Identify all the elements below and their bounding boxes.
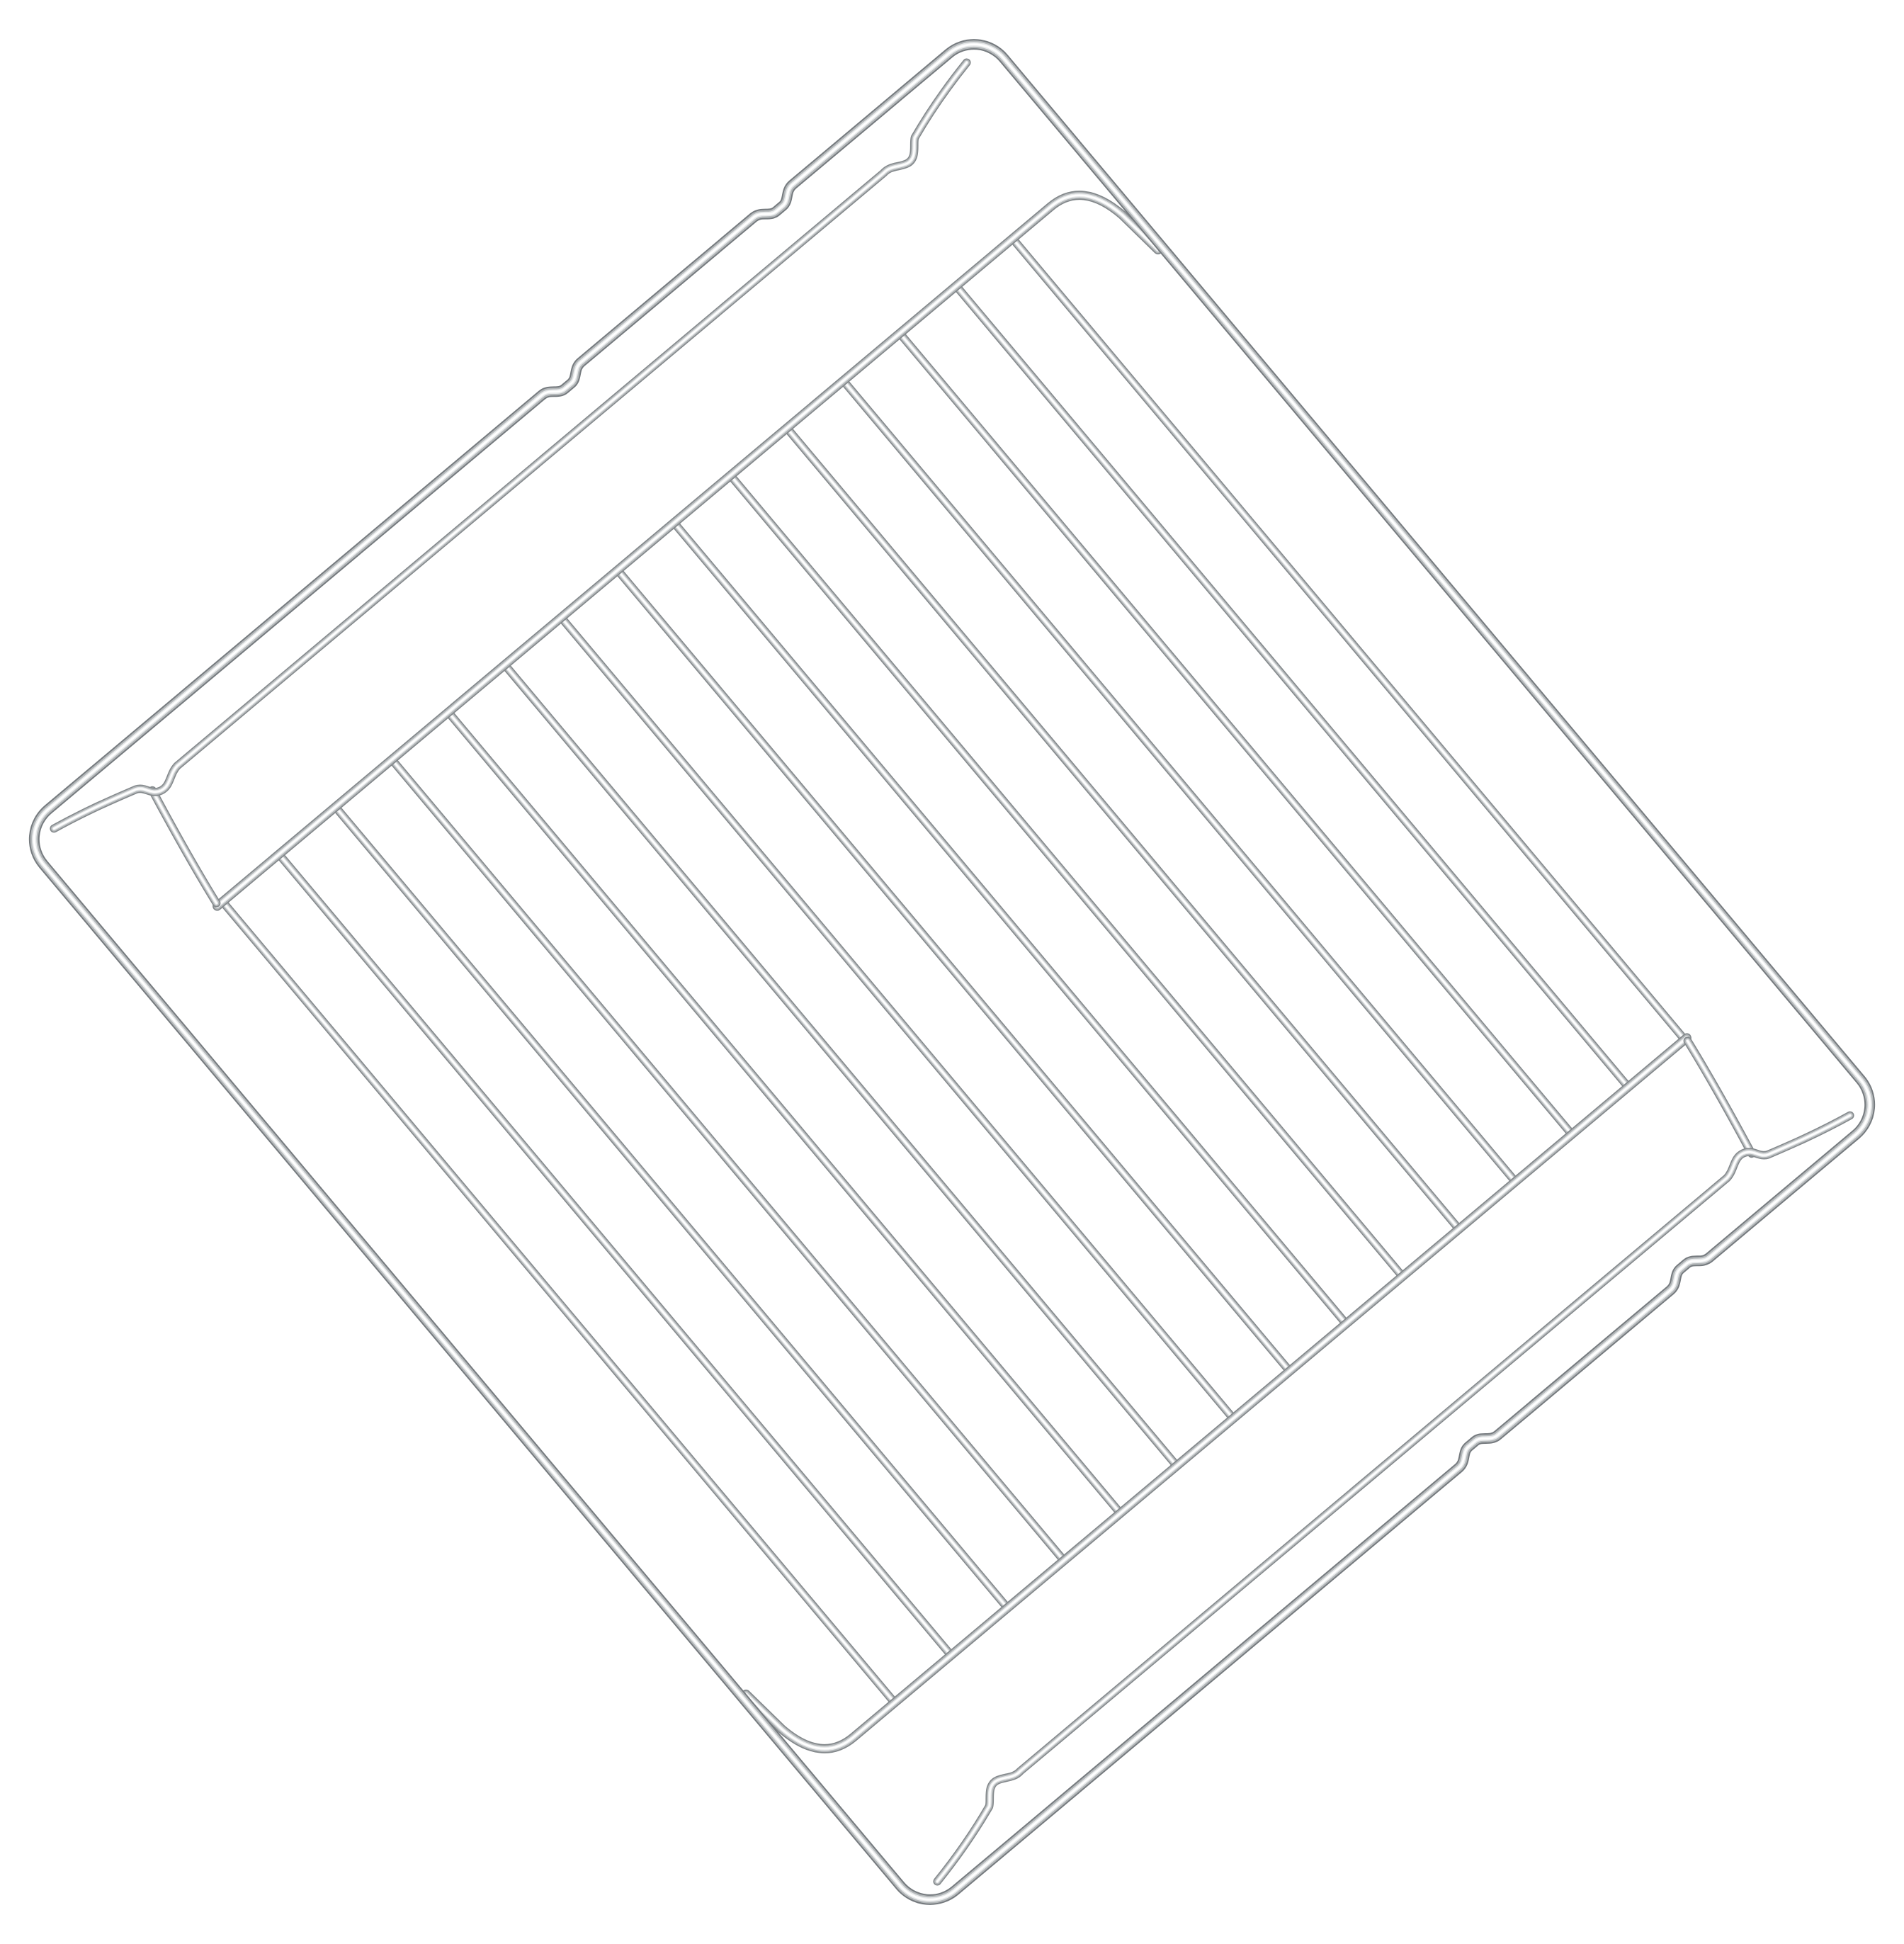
oven-rack-photo <box>0 0 1904 1944</box>
photo-stage <box>0 0 1904 1944</box>
